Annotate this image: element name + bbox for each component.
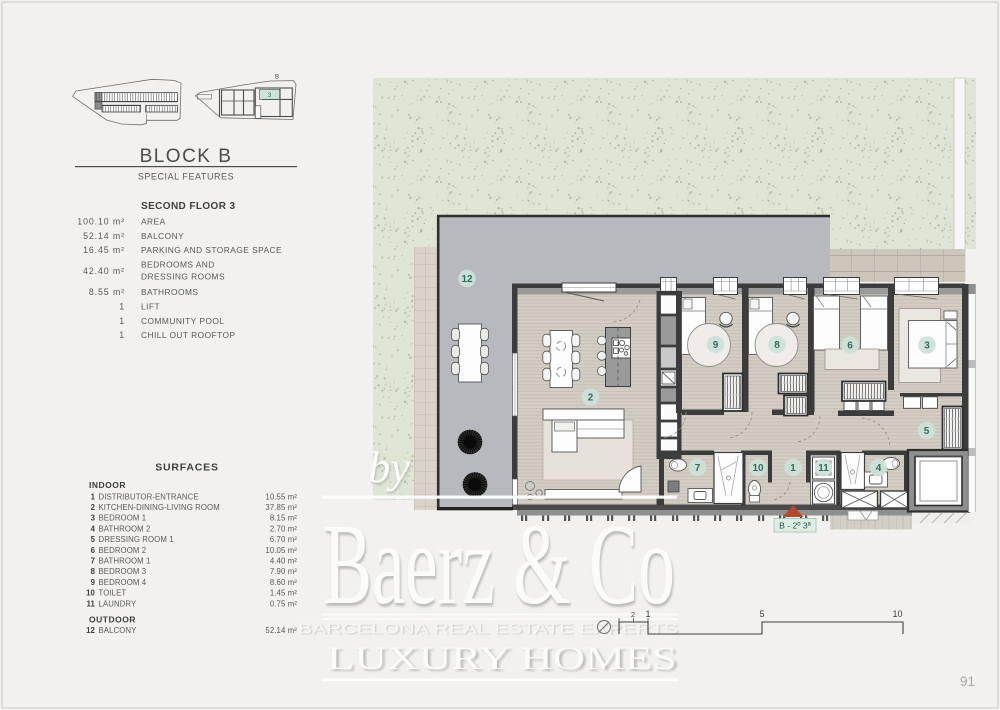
svg-text:11: 11: [87, 599, 96, 608]
svg-text:DISTRIBUTOR-ENTRANCE: DISTRIBUTOR-ENTRANCE: [99, 492, 199, 501]
svg-text:LIFT: LIFT: [141, 302, 160, 312]
svg-text:1: 1: [119, 330, 125, 340]
svg-text:B: B: [275, 75, 279, 81]
svg-text:1: 1: [645, 609, 650, 619]
svg-text:2.70 m²: 2.70 m²: [270, 524, 297, 533]
svg-text:BATHROOMS: BATHROOMS: [141, 287, 198, 297]
svg-text:7: 7: [695, 463, 701, 474]
svg-text:LAUNDRY: LAUNDRY: [99, 599, 138, 608]
svg-text:DRESSING ROOM 1: DRESSING ROOM 1: [99, 535, 174, 544]
svg-text:10: 10: [86, 589, 95, 598]
svg-text:2: 2: [91, 503, 96, 512]
svg-text:8.60 m²: 8.60 m²: [270, 578, 297, 587]
svg-text:42.40 m²: 42.40 m²: [83, 266, 125, 276]
svg-text:11: 11: [818, 463, 829, 474]
svg-text:1.45 m²: 1.45 m²: [270, 589, 297, 598]
svg-text:52.14 m²: 52.14 m²: [83, 231, 125, 241]
svg-text:52.14 m²: 52.14 m²: [265, 626, 297, 635]
svg-text:8: 8: [91, 567, 96, 576]
svg-text:SECOND FLOOR 3: SECOND FLOOR 3: [141, 201, 236, 212]
svg-text:LUXURY HOMES: LUXURY HOMES: [327, 641, 677, 677]
svg-text:CHILL OUT ROOFTOP: CHILL OUT ROOFTOP: [141, 330, 236, 340]
svg-text:3: 3: [924, 341, 930, 352]
svg-text:10: 10: [892, 609, 902, 619]
svg-text:10: 10: [752, 463, 764, 474]
svg-text:0.75 m²: 0.75 m²: [270, 599, 297, 608]
svg-text:1: 1: [119, 316, 125, 326]
svg-text:10.55 m²: 10.55 m²: [265, 492, 297, 501]
svg-text:5: 5: [759, 609, 764, 619]
svg-text:8.15 m²: 8.15 m²: [270, 514, 297, 523]
svg-text:BEDROOM 1: BEDROOM 1: [99, 514, 147, 523]
svg-text:37.85 m²: 37.85 m²: [265, 503, 297, 512]
svg-text:BATHROOM 1: BATHROOM 1: [99, 557, 151, 566]
svg-text:4: 4: [876, 463, 882, 474]
svg-text:1: 1: [119, 302, 125, 312]
svg-text:PARKING AND STORAGE SPACE: PARKING AND STORAGE SPACE: [141, 245, 282, 255]
svg-text:B - 2º 3ª: B - 2º 3ª: [779, 520, 811, 530]
svg-text:TOILET: TOILET: [99, 589, 127, 598]
svg-text:BARCELONA REAL ESTATE EXPERTS: BARCELONA REAL ESTATE EXPERTS: [298, 622, 678, 638]
svg-text:BLOCK B: BLOCK B: [140, 146, 233, 167]
svg-text:2: 2: [588, 393, 594, 404]
svg-text:7: 7: [91, 557, 95, 566]
svg-text:DRESSING ROOMS: DRESSING ROOMS: [141, 272, 225, 282]
svg-text:91: 91: [960, 674, 975, 689]
svg-text:BEDROOM 2: BEDROOM 2: [99, 546, 147, 555]
svg-text:9: 9: [91, 578, 96, 587]
svg-text:BEDROOM 3: BEDROOM 3: [99, 567, 147, 576]
svg-text:by: by: [368, 443, 410, 492]
svg-text:OUTDOOR: OUTDOOR: [89, 614, 136, 624]
svg-text:BEDROOMS AND: BEDROOMS AND: [141, 259, 215, 269]
svg-text:100.10 m²: 100.10 m²: [77, 217, 125, 227]
svg-text:12: 12: [86, 626, 95, 635]
svg-text:4: 4: [91, 524, 96, 533]
svg-text:6: 6: [91, 546, 96, 555]
svg-text:6: 6: [847, 341, 853, 352]
svg-text:SURFACES: SURFACES: [155, 462, 219, 474]
svg-text:4.40 m²: 4.40 m²: [270, 557, 297, 566]
svg-text:10.05 m²: 10.05 m²: [265, 546, 297, 555]
svg-text:BEDROOM 4: BEDROOM 4: [99, 578, 147, 587]
svg-text:8: 8: [774, 340, 780, 351]
svg-text:1: 1: [91, 492, 96, 501]
svg-text:16.45 m²: 16.45 m²: [83, 245, 125, 255]
svg-text:KITCHEN-DINING-LIVING ROOM: KITCHEN-DINING-LIVING ROOM: [99, 503, 220, 512]
svg-text:BATHROOM 2: BATHROOM 2: [99, 524, 151, 533]
svg-text:BALCONY: BALCONY: [141, 231, 184, 241]
svg-text:12: 12: [461, 274, 473, 285]
svg-text:SPECIAL FEATURES: SPECIAL FEATURES: [138, 172, 234, 182]
svg-text:COMMUNITY POOL: COMMUNITY POOL: [141, 316, 224, 326]
svg-text:7.90 m²: 7.90 m²: [270, 567, 297, 576]
svg-text:5: 5: [91, 535, 96, 544]
svg-text:Baerz & Co: Baerz & Co: [323, 501, 675, 629]
svg-text:AREA: AREA: [141, 217, 166, 227]
svg-text:6.70 m²: 6.70 m²: [270, 535, 297, 544]
svg-text:9: 9: [713, 340, 719, 351]
svg-text:INDOOR: INDOOR: [89, 480, 126, 490]
svg-text:3: 3: [91, 514, 96, 523]
svg-text:8.55 m²: 8.55 m²: [89, 287, 125, 297]
svg-text:1: 1: [790, 463, 796, 474]
svg-text:2: 2: [631, 610, 635, 619]
svg-text:BALCONY: BALCONY: [99, 626, 138, 635]
svg-text:5: 5: [924, 426, 930, 437]
